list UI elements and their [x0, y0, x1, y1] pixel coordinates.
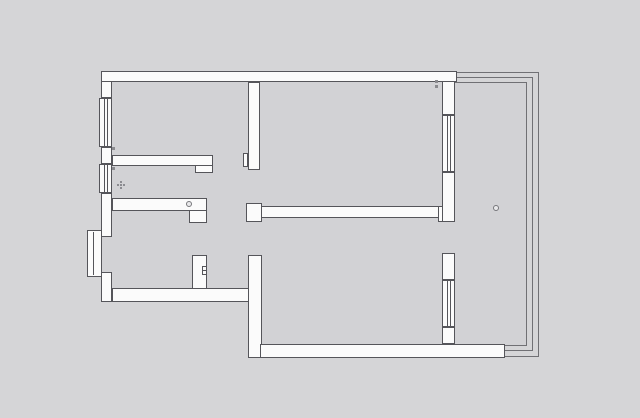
entry-door-frame [87, 230, 102, 277]
left-exterior-wall-mid2 [101, 193, 112, 237]
right-wall-lower1 [442, 253, 455, 280]
left-exterior-wall-lower [101, 272, 112, 302]
fixture-box [202, 270, 207, 275]
room-tag-mark [435, 85, 438, 88]
entry-door-leaf-line [93, 232, 94, 275]
window-pane-line [450, 116, 451, 171]
foyer-wall-fixture-symbol [202, 266, 207, 275]
window-pane-line [104, 165, 105, 192]
central-horizontal-left-block [246, 203, 262, 222]
right-wall-mid [442, 172, 455, 222]
window-pane-line [107, 99, 108, 146]
central-vertical-wall [248, 82, 260, 170]
room-tag-mark [435, 80, 438, 83]
window-tag-mark [112, 147, 115, 150]
floor-entry-opening [102, 237, 112, 272]
floor-hallway [112, 166, 248, 198]
left-exterior-wall-mid1 [101, 147, 112, 164]
floor-foyer [112, 211, 192, 288]
foyer-north-jamb [189, 210, 207, 223]
bottom-exterior-wall [260, 344, 505, 358]
right-wall-lower2 [442, 327, 455, 344]
window-pane-line [447, 281, 448, 326]
floor-balcony-doorway [442, 222, 455, 253]
kitchen-door-jamb [195, 165, 213, 173]
hallway-fixture-symbol [117, 181, 125, 189]
floor-living-doorway [248, 170, 260, 206]
floor-vestibule [207, 198, 248, 288]
window-pane-line [447, 116, 448, 171]
window-living-right [442, 115, 455, 172]
balcony-glazing-inner [455, 82, 527, 346]
floor-kitchen [112, 82, 248, 155]
window-hallway-left [99, 164, 112, 193]
window-pane-line [107, 165, 108, 192]
central-horizontal-wall [248, 206, 450, 218]
window-kitchen-left [99, 98, 112, 147]
window-bedroom-right [442, 280, 455, 327]
doorway-knob-symbol [186, 201, 192, 207]
window-pane-line [450, 281, 451, 326]
floor-plan-canvas [0, 0, 640, 418]
floor-bedroom-doorway [248, 222, 262, 255]
floor-foyer-opening [192, 223, 207, 255]
flower-petal-dots [120, 184, 122, 186]
floor-bedroom [262, 218, 442, 344]
left-exterior-wall-upper [101, 81, 112, 98]
window-pane-line [104, 99, 105, 146]
bedroom-west-wall [248, 255, 262, 358]
floor-living-room [260, 82, 442, 206]
window-tag-mark [112, 167, 115, 170]
central-vertical-jamb [243, 153, 248, 167]
top-exterior-wall [101, 71, 457, 82]
right-wall-upper [442, 81, 455, 115]
foyer-south-wall [112, 288, 249, 302]
balcony-drain-symbol [493, 205, 499, 211]
